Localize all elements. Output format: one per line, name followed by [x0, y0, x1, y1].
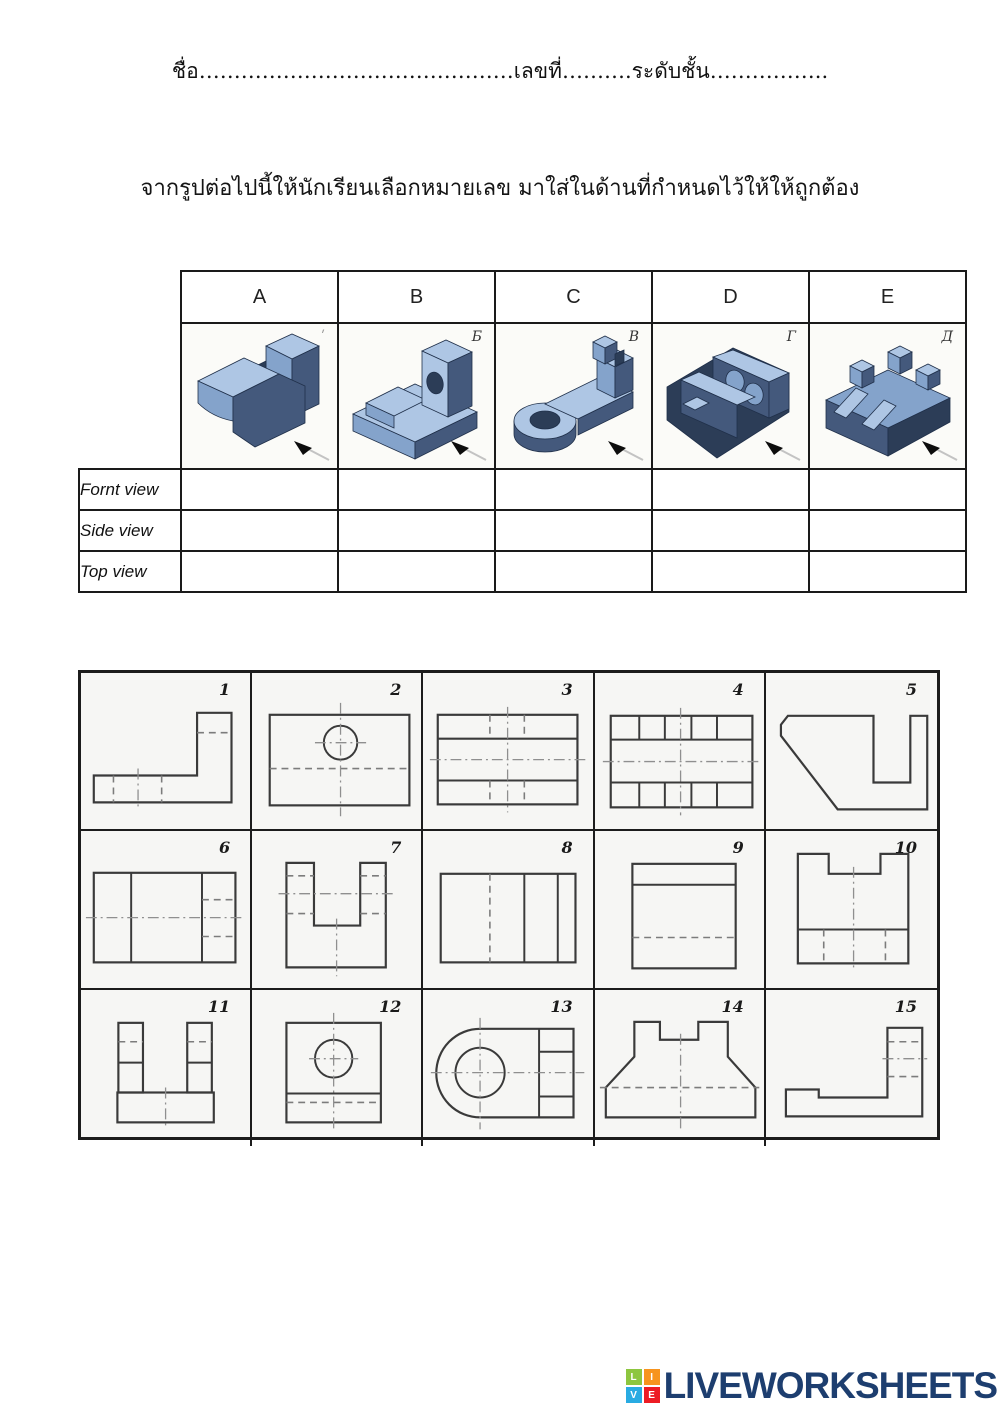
answer-cell-front-e[interactable]	[809, 469, 966, 510]
row-label-side-view: Side view	[79, 510, 181, 551]
view-cell-2: 2	[252, 673, 423, 831]
view-number: 6	[219, 838, 230, 857]
view-cell-15: 15	[766, 990, 937, 1146]
answer-cell-front-c[interactable]	[495, 469, 652, 510]
view-cell-4: 4	[595, 673, 766, 831]
view-cell-13: 13	[423, 990, 594, 1146]
answer-cell-side-e[interactable]	[809, 510, 966, 551]
column-header-a: A	[181, 271, 338, 323]
iso-part-c-image: В	[496, 324, 651, 468]
logo-square-i: I	[644, 1369, 660, 1385]
answer-cell-top-e[interactable]	[809, 551, 966, 592]
view-cell-8: 8	[423, 831, 594, 989]
view-number: 14	[722, 997, 744, 1016]
view-number: 7	[390, 838, 401, 857]
view-number: 1	[219, 680, 230, 699]
view-cell-14: 14	[595, 990, 766, 1146]
view-number: 13	[550, 997, 572, 1016]
row-label-front-view: Fornt view	[79, 469, 181, 510]
answer-cell-side-b[interactable]	[338, 510, 495, 551]
view-number: 15	[895, 997, 917, 1016]
name-number-class-line: ชื่อ………………………………………เลขที่……….ระดับชั้น………	[0, 55, 1000, 88]
view-cell-1: 1	[81, 673, 252, 831]
column-header-b: B	[338, 271, 495, 323]
liveworksheets-logo: L I V E LIVEWORKSHEETS	[626, 1365, 997, 1407]
iso-part-e-image: Д	[810, 324, 965, 468]
view-cell-3: 3	[423, 673, 594, 831]
view-number: 10	[895, 838, 917, 857]
view-cell-10: 10	[766, 831, 937, 989]
iso-part-b-drawing	[339, 324, 494, 468]
row-label-top-view: Top view	[79, 551, 181, 592]
iso-part-b-image: Б	[339, 324, 494, 468]
iso-part-d-drawing	[653, 324, 808, 468]
view-number: 5	[906, 680, 917, 699]
part-label-e: Д	[942, 329, 953, 345]
logo-square-e: E	[644, 1387, 660, 1403]
orthographic-views-grid: 1 2 3	[78, 670, 940, 1140]
view-cell-6: 6	[81, 831, 252, 989]
iso-part-e-drawing	[810, 324, 965, 468]
view-number: 9	[733, 838, 744, 857]
iso-part-a-image: ʹ	[182, 324, 337, 468]
column-header-d: D	[652, 271, 809, 323]
answer-cell-side-d[interactable]	[652, 510, 809, 551]
answer-cell-top-b[interactable]	[338, 551, 495, 592]
iso-part-c-drawing	[496, 324, 651, 468]
column-header-e: E	[809, 271, 966, 323]
view-number: 2	[390, 680, 401, 699]
view-number: 8	[561, 838, 572, 857]
answer-cell-top-c[interactable]	[495, 551, 652, 592]
logo-square-v: V	[626, 1387, 642, 1403]
liveworksheets-logo-text: LIVEWORKSHEETS	[664, 1365, 997, 1407]
iso-part-d-image: Г	[653, 324, 808, 468]
liveworksheets-logo-icon: L I V E	[626, 1369, 660, 1403]
view-cell-11: 11	[81, 990, 252, 1146]
matching-table: A B C D E ʹ	[78, 270, 967, 593]
view-number: 12	[379, 997, 401, 1016]
answer-cell-top-a[interactable]	[181, 551, 338, 592]
part-label-a: ʹ	[321, 329, 325, 345]
worksheet-page: ชื่อ………………………………………เลขที่……….ระดับชั้น………	[0, 0, 1000, 1413]
answer-cell-front-b[interactable]	[338, 469, 495, 510]
part-label-c: В	[629, 329, 639, 345]
view-number: 4	[733, 680, 744, 699]
part-label-d: Г	[787, 329, 796, 345]
iso-part-a-drawing	[182, 324, 337, 468]
view-cell-9: 9	[595, 831, 766, 989]
logo-square-l: L	[626, 1369, 642, 1385]
view-number: 11	[208, 997, 230, 1016]
view-cell-7: 7	[252, 831, 423, 989]
instruction-text: จากรูปต่อไปนี้ให้นักเรียนเลือกหมายเลข มา…	[0, 170, 1000, 205]
column-header-c: C	[495, 271, 652, 323]
part-label-b: Б	[472, 329, 482, 345]
answer-cell-side-c[interactable]	[495, 510, 652, 551]
view-cell-5: 5	[766, 673, 937, 831]
answer-cell-front-d[interactable]	[652, 469, 809, 510]
view-cell-12: 12	[252, 990, 423, 1146]
answer-cell-top-d[interactable]	[652, 551, 809, 592]
answer-cell-side-a[interactable]	[181, 510, 338, 551]
view-number: 3	[561, 680, 572, 699]
answer-cell-front-a[interactable]	[181, 469, 338, 510]
